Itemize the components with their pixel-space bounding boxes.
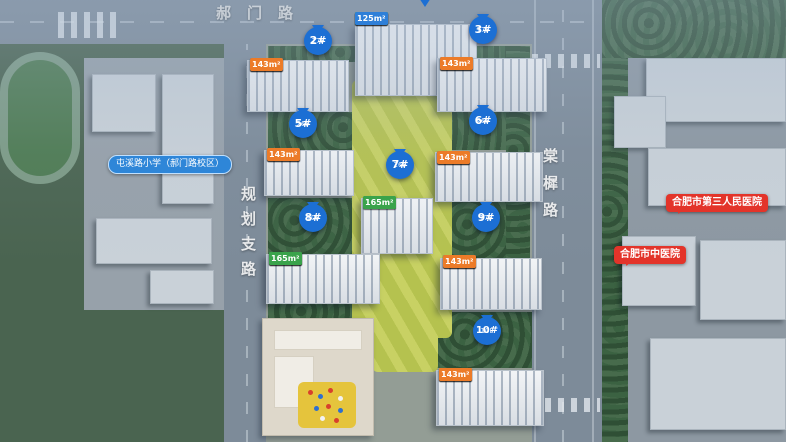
hospital-building xyxy=(614,96,666,148)
poi-school-label[interactable]: 屯溪路小学（郝门路校区） xyxy=(108,155,232,174)
hospital-building xyxy=(646,58,786,122)
pin-tip xyxy=(307,202,319,217)
pin-tip xyxy=(297,108,309,123)
kindergarten-roof xyxy=(274,330,362,350)
site-plan-map: 郝门路 规划支路 棠樨路 2# 17F 3# 17F 5# 26F 6# 26F… xyxy=(0,0,786,442)
pin-tip xyxy=(312,25,324,40)
hospital-building xyxy=(650,338,786,430)
hospital-building xyxy=(700,240,786,320)
pin-tip xyxy=(481,315,493,330)
playground-equipment xyxy=(308,390,313,395)
school-building xyxy=(92,74,156,132)
area-tag: 143m² xyxy=(250,58,283,71)
kindergarten-playground xyxy=(298,382,356,428)
stadium-track xyxy=(0,52,80,184)
area-tag: 143m² xyxy=(437,151,470,164)
area-tag: 165m² xyxy=(269,252,302,265)
school-building xyxy=(150,270,214,304)
road-label-right: 棠樨路 xyxy=(540,148,561,229)
area-tag: 143m² xyxy=(440,57,473,70)
area-tag: 143m² xyxy=(443,255,476,268)
area-tag: 165m² xyxy=(363,196,396,209)
tree-band xyxy=(590,0,786,58)
pin-tip xyxy=(480,202,492,217)
area-tag: 125m² xyxy=(355,12,388,25)
poi-hospital-tcm-label[interactable]: 合肥市中医院 xyxy=(614,246,686,264)
area-tag: 143m² xyxy=(439,368,472,381)
central-lawn xyxy=(372,300,438,372)
building-1-pin-tip xyxy=(419,0,431,13)
road-label-top: 郝门路 xyxy=(216,2,309,23)
pin-tip xyxy=(394,149,406,164)
road-label-left: 规划支路 xyxy=(238,186,259,286)
school-building xyxy=(162,74,214,204)
poi-hospital-third-label[interactable]: 合肥市第三人民医院 xyxy=(666,194,768,212)
pin-tip xyxy=(477,105,489,120)
school-building xyxy=(96,218,212,264)
crosswalk xyxy=(58,12,118,38)
area-tag: 143m² xyxy=(267,148,300,161)
pin-tip xyxy=(477,14,489,29)
